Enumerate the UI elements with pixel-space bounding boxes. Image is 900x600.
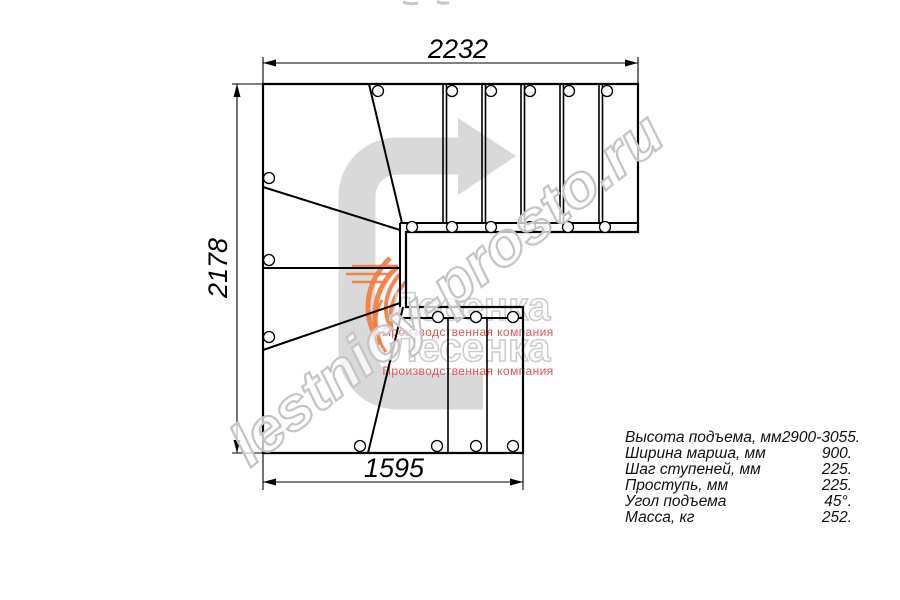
- spec-value: 2900-3055.: [782, 430, 860, 446]
- spec-value: 225.: [822, 462, 852, 478]
- cropped-text-artifact: [403, 2, 449, 4]
- spec-label: Проступь, мм: [625, 478, 728, 494]
- spec-row-climb-angle: Угол подъема 45°.: [625, 494, 852, 510]
- spec-label: Угол подъема: [625, 494, 726, 510]
- spec-row-flight-width: Ширина марша, мм 900.: [625, 446, 852, 462]
- spec-row-mass: Масса, кг 252.: [625, 510, 852, 526]
- dimension-top: 2232: [263, 34, 638, 84]
- direction-arrow-head: [458, 118, 516, 195]
- spec-value: 900.: [822, 446, 852, 462]
- dimension-bottom-label: 1595: [364, 453, 425, 483]
- spec-label: Высота подъема, мм: [625, 430, 782, 446]
- dimension-left-label: 2178: [203, 238, 233, 299]
- spec-value: 225.: [822, 478, 852, 494]
- logo-caption-text-2: Производственная компания: [382, 364, 553, 378]
- dimension-bottom: 1595: [263, 453, 523, 490]
- spec-label: Масса, кг: [625, 510, 694, 526]
- spec-row-step-pitch: Шаг ступеней, мм 225.: [625, 462, 852, 478]
- dimension-top-label: 2232: [427, 34, 488, 64]
- spec-label: Шаг ступеней, мм: [625, 462, 761, 478]
- spec-value: 252.: [822, 510, 852, 526]
- specs-list: Высота подъема, мм 2900-3055. Ширина мар…: [625, 430, 852, 526]
- spec-value: 45°.: [824, 494, 852, 510]
- spec-row-tread-depth: Проступь, мм 225.: [625, 478, 852, 494]
- spec-label: Ширина марша, мм: [625, 446, 766, 462]
- spec-row-rise-height: Высота подъема, мм 2900-3055.: [625, 430, 852, 446]
- staircase-drawing-page: Лесенка Производственная компания Лесенк…: [0, 0, 900, 600]
